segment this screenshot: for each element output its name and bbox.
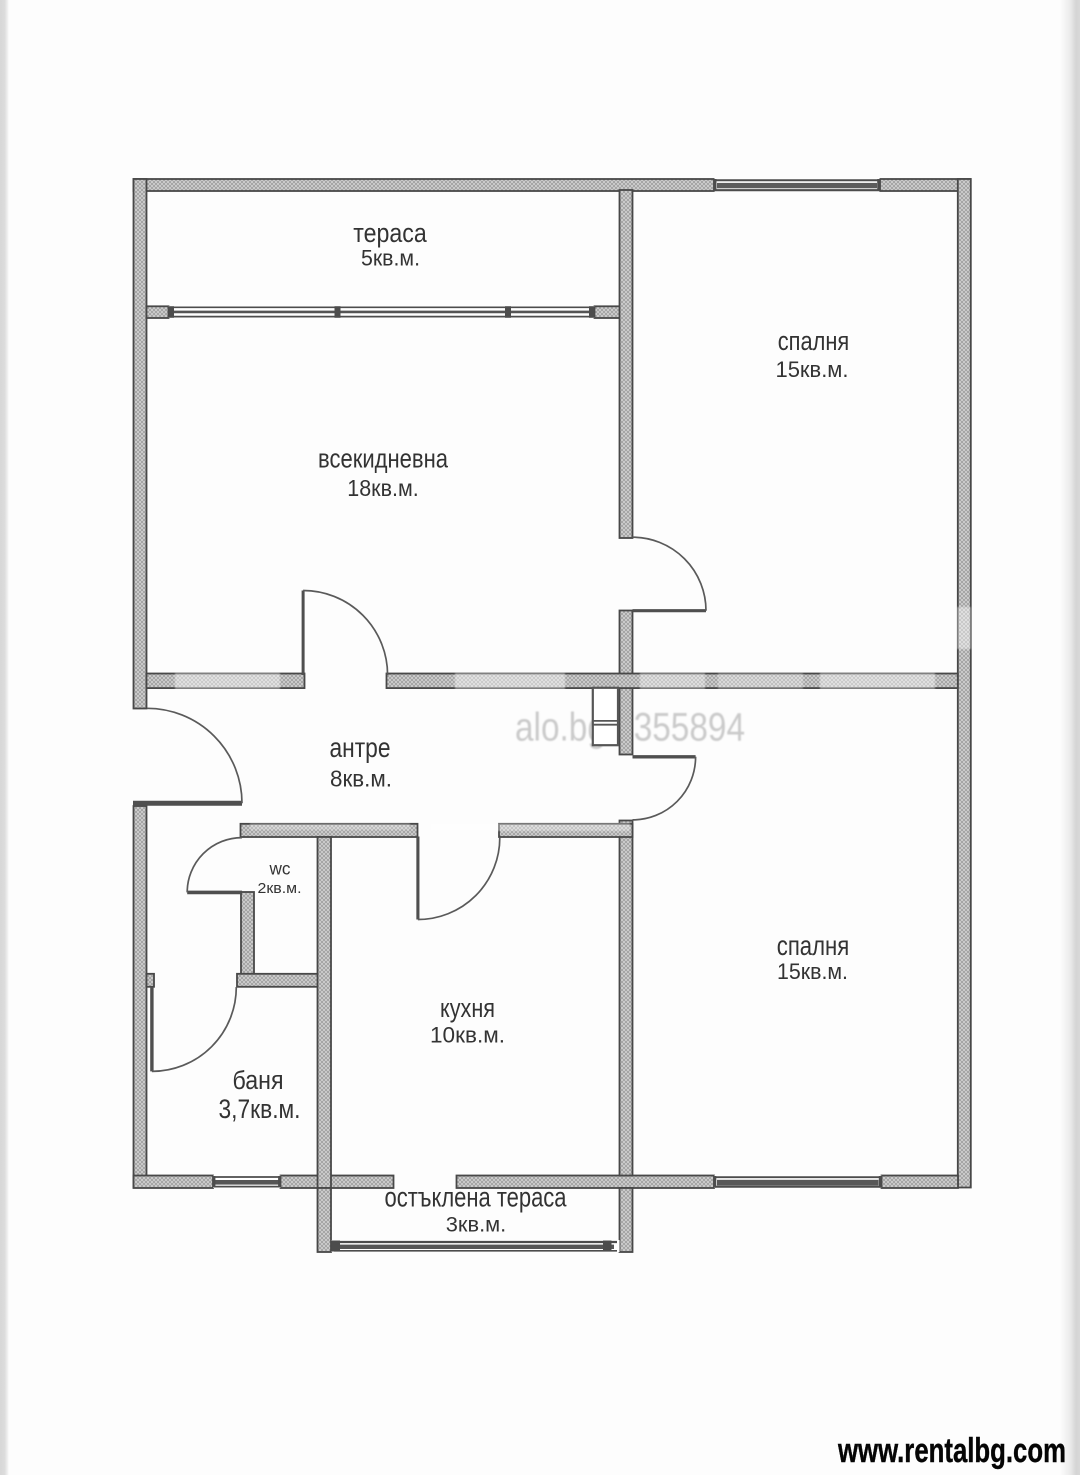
svg-text:15кв.м.: 15кв.м.: [776, 357, 849, 382]
svg-text:3кв.м.: 3кв.м.: [446, 1213, 507, 1237]
svg-text:wc: wc: [269, 859, 291, 879]
svg-text:спалня: спалня: [778, 326, 850, 356]
svg-text:кухня: кухня: [440, 993, 495, 1023]
svg-text:5кв.м.: 5кв.м.: [361, 246, 420, 271]
svg-text:баня: баня: [233, 1067, 284, 1095]
svg-text:www.rentalbg.com: www.rentalbg.com: [837, 1432, 1066, 1470]
svg-text:18кв.м.: 18кв.м.: [347, 475, 419, 501]
svg-text:антре: антре: [330, 732, 391, 763]
svg-text:всекидневна: всекидневна: [318, 444, 449, 474]
svg-text:2кв.м.: 2кв.м.: [258, 881, 302, 897]
svg-text:остъклена тераса: остъклена тераса: [385, 1182, 567, 1213]
svg-text:тераса: тераса: [353, 218, 427, 248]
svg-text:15кв.м.: 15кв.м.: [777, 959, 848, 984]
svg-text:10кв.м.: 10кв.м.: [430, 1023, 505, 1048]
svg-text:3,7кв.м.: 3,7кв.м.: [219, 1094, 301, 1124]
svg-text:8кв.м.: 8кв.м.: [330, 766, 392, 792]
svg-text:спалня: спалня: [777, 930, 850, 961]
